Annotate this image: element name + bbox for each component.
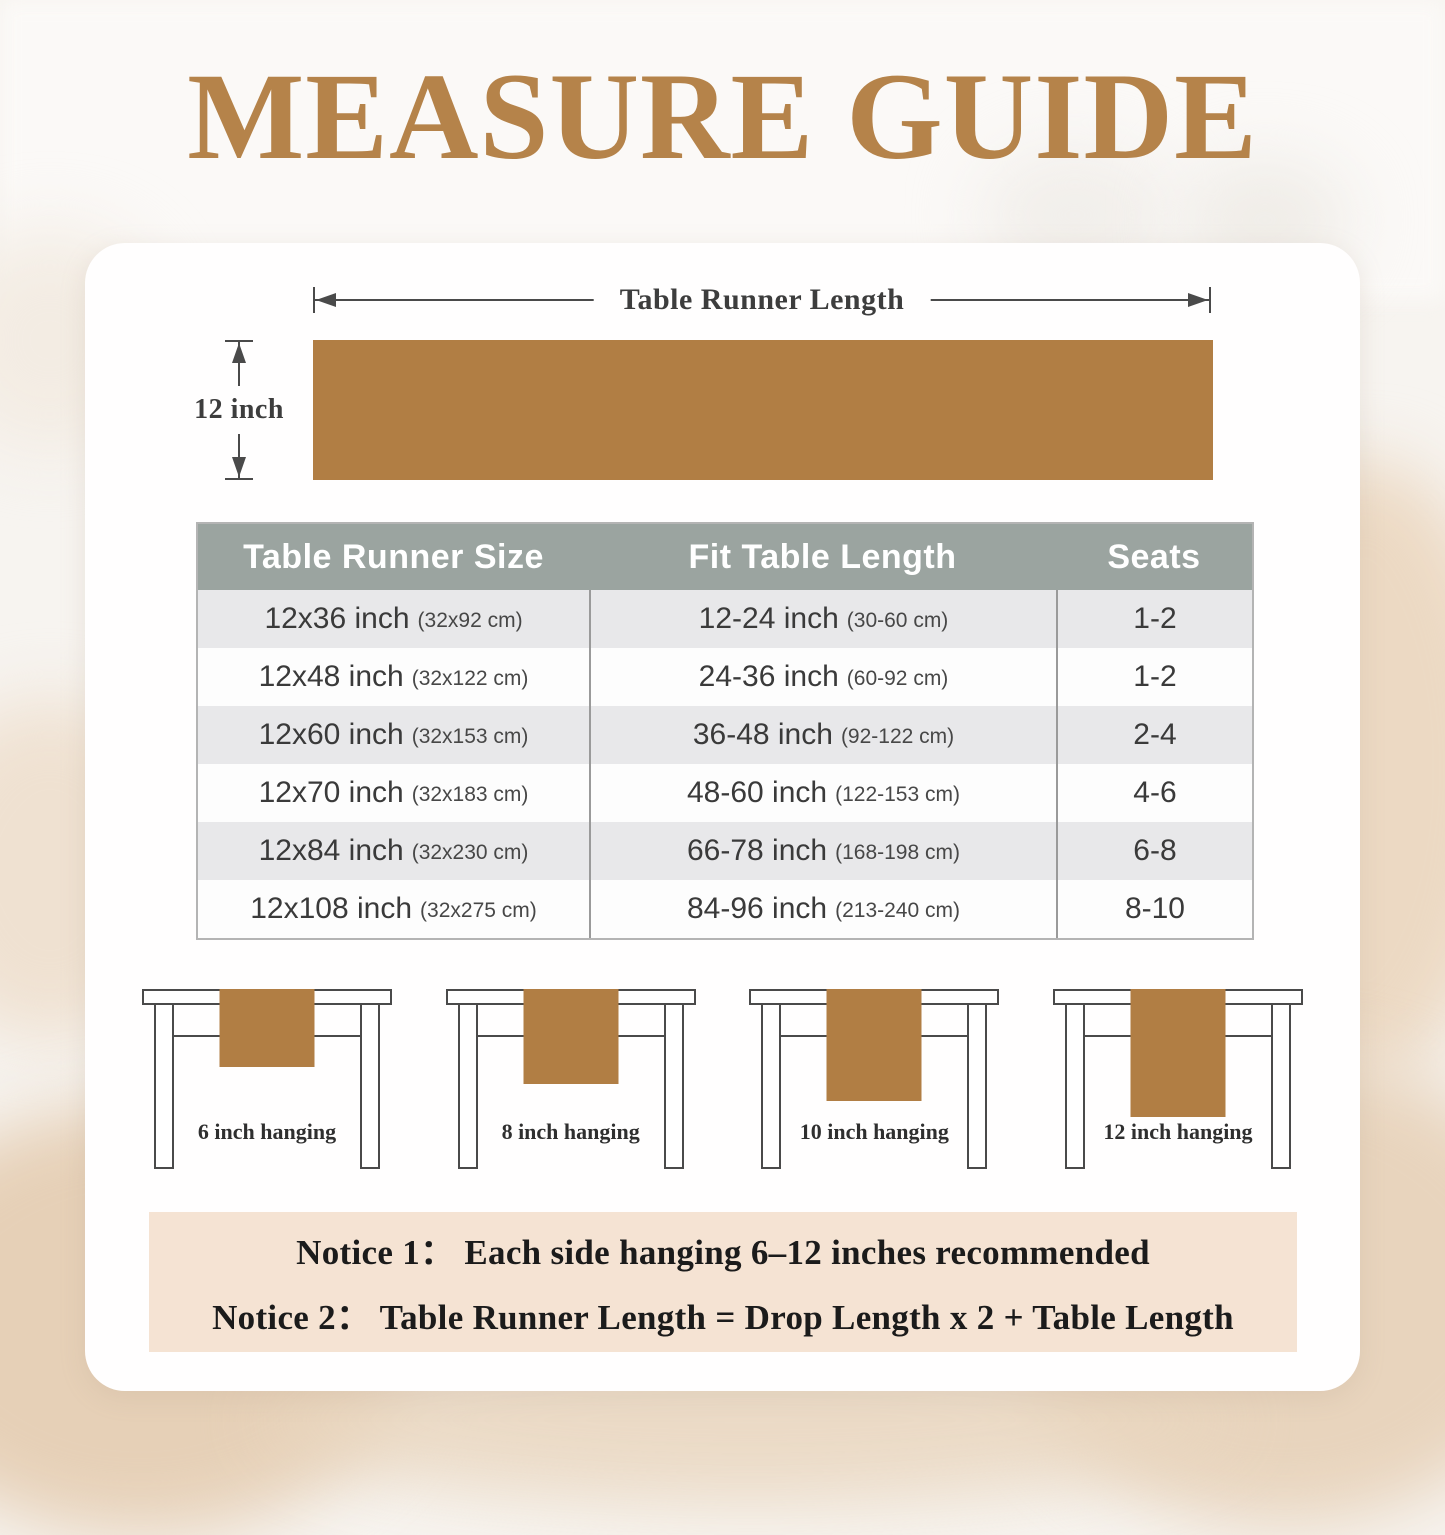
table-header-row: Table Runner Size Fit Table Length Seats [198,524,1252,590]
runner-size-cm: (32x183 cm) [412,779,529,807]
runner-measure-diagram: Table Runner Length 12 inch [85,243,1360,522]
size-chart-table: Table Runner Size Fit Table Length Seats… [196,522,1254,940]
runner-drape [220,989,315,1067]
dimension-end-cap [225,340,253,342]
dimension-end-cap [1209,287,1211,313]
column-header-seats: Seats [1056,524,1252,590]
runner-size-value: 12x36 inch [264,602,409,636]
dimension-end-cap [313,287,315,313]
arrowhead-up-icon [232,343,246,363]
table-row: 12x60 inch(32x153 cm) 36-48 inch(92-122 … [198,706,1252,764]
runner-size-cm: (32x92 cm) [418,605,523,633]
hanging-illustrations: 6 inch hanging 8 inch hanging 10 inch ha… [85,989,1360,1171]
seats-value: 1-2 [1056,648,1252,706]
width-dimension-label: 12 inch [190,386,288,434]
runner-size-cm: (32x230 cm) [412,837,529,865]
runner-size-cm: (32x275 cm) [420,895,537,923]
fit-length-value: 48-60 inch [687,776,827,810]
table-figure-8-inch: 8 inch hanging [446,989,696,1171]
fit-length-cm: (60-92 cm) [847,663,949,691]
seats-value: 8-10 [1056,880,1252,938]
table-row: 12x108 inch(32x275 cm) 84-96 inch(213-24… [198,880,1252,938]
notice-line-1: Notice 1： Each side hanging 6–12 inches … [296,1224,1150,1275]
fit-length-cm: (168-198 cm) [835,837,960,865]
seats-value: 2-4 [1056,706,1252,764]
dimension-end-cap [225,478,253,480]
table-figure-6-inch: 6 inch hanging [142,989,392,1171]
fit-length-cm: (122-153 cm) [835,779,960,807]
fit-length-value: 12-24 inch [699,602,839,636]
table-figure-10-inch: 10 inch hanging [749,989,999,1171]
seats-value: 1-2 [1056,590,1252,648]
page-title: MEASURE GUIDE [0,52,1445,182]
runner-size-value: 12x108 inch [250,892,412,926]
length-dimension-label: Table Runner Length [594,281,931,319]
runner-drape [827,989,922,1101]
hanging-label: 8 inch hanging [446,1119,696,1145]
hanging-label: 12 inch hanging [1053,1119,1303,1145]
table-row: 12x36 inch(32x92 cm) 12-24 inch(30-60 cm… [198,590,1252,648]
fit-length-value: 66-78 inch [687,834,827,868]
fit-length-value: 84-96 inch [687,892,827,926]
column-header-runner-size: Table Runner Size [198,524,589,590]
table-row: 12x48 inch(32x122 cm) 24-36 inch(60-92 c… [198,648,1252,706]
notice-line-2: Notice 2： Table Runner Length = Drop Len… [212,1289,1234,1340]
seats-value: 4-6 [1056,764,1252,822]
notice-panel: Notice 1： Each side hanging 6–12 inches … [149,1212,1297,1352]
table-figure-12-inch: 12 inch hanging [1053,989,1303,1171]
arrowhead-down-icon [232,457,246,477]
fit-length-value: 36-48 inch [693,718,833,752]
runner-size-value: 12x48 inch [259,660,404,694]
arrowhead-right-icon [1188,293,1208,307]
runner-drape [523,989,618,1084]
seats-value: 6-8 [1056,822,1252,880]
fit-length-cm: (30-60 cm) [847,605,949,633]
hanging-label: 10 inch hanging [749,1119,999,1145]
table-row: 12x84 inch(32x230 cm) 66-78 inch(168-198… [198,822,1252,880]
width-dimension-arrow: 12 inch [225,340,253,480]
arrowhead-left-icon [316,293,336,307]
table-row: 12x70 inch(32x183 cm) 48-60 inch(122-153… [198,764,1252,822]
fit-length-cm: (213-240 cm) [835,895,960,923]
hanging-label: 6 inch hanging [142,1119,392,1145]
measure-guide-card: Table Runner Length 12 inch Table Runner… [85,243,1360,1391]
runner-swatch [313,340,1213,480]
fit-length-cm: (92-122 cm) [841,721,954,749]
column-header-fit-length: Fit Table Length [589,524,1056,590]
runner-size-value: 12x84 inch [259,834,404,868]
runner-size-value: 12x70 inch [259,776,404,810]
runner-size-cm: (32x122 cm) [412,663,529,691]
length-dimension-arrow: Table Runner Length [313,287,1211,313]
runner-drape [1130,989,1225,1117]
fit-length-value: 24-36 inch [699,660,839,694]
runner-size-cm: (32x153 cm) [412,721,529,749]
runner-size-value: 12x60 inch [259,718,404,752]
